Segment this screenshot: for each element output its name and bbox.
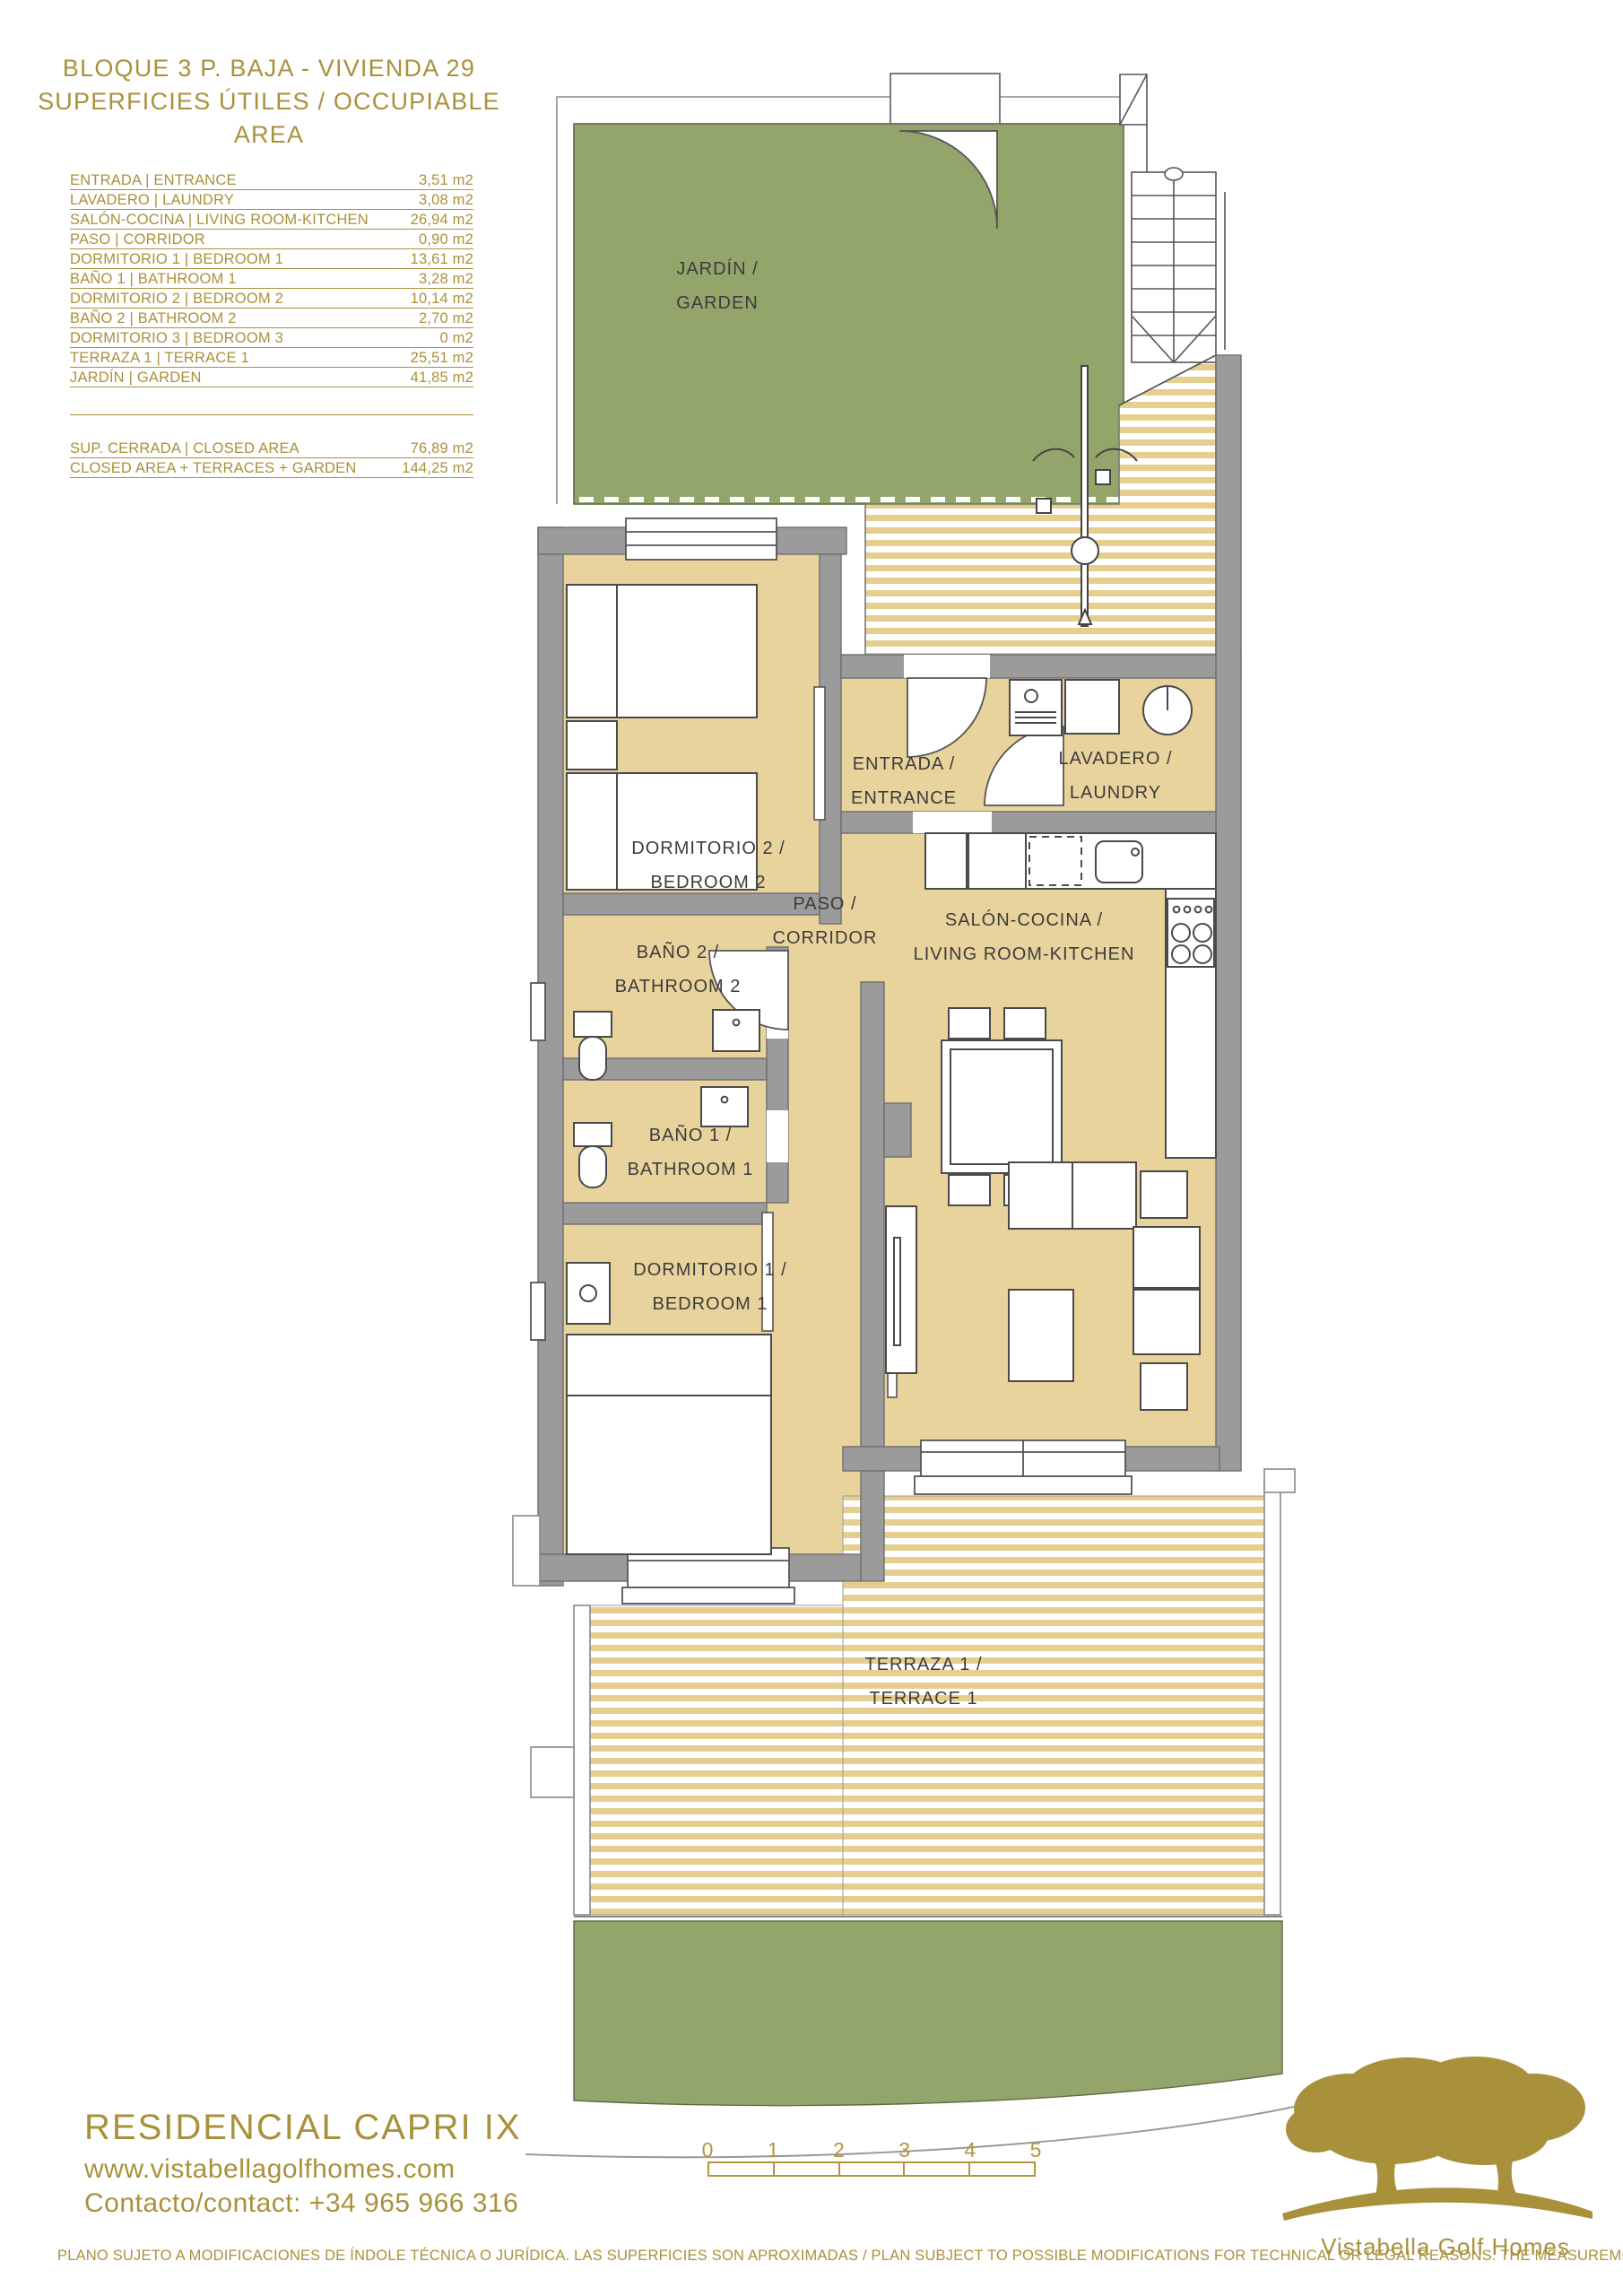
svg-text:CORRIDOR: CORRIDOR xyxy=(773,928,878,948)
logo-text: Vistabella Golf Homes xyxy=(1321,2233,1570,2260)
bathroom2-label: BAÑO 2 / xyxy=(637,941,719,962)
project-title: RESIDENCIAL CAPRI IX xyxy=(84,2108,522,2148)
garden-area xyxy=(574,124,1124,504)
bedroom2-label: DORMITORIO 2 / xyxy=(631,839,785,858)
entrance-label: ENTRADA / xyxy=(853,754,956,774)
svg-text:BATHROOM 1: BATHROOM 1 xyxy=(628,1160,754,1179)
scale-tick: 4 xyxy=(964,2138,976,2162)
terrace-label: TERRAZA 1 / xyxy=(864,1655,982,1674)
staircase xyxy=(1119,74,1225,405)
bottom-garden-area xyxy=(574,1921,1282,2106)
scale-tick: 5 xyxy=(1030,2138,1042,2162)
svg-text:BEDROOM 2: BEDROOM 2 xyxy=(650,873,766,892)
svg-text:TERRACE 1: TERRACE 1 xyxy=(869,1689,977,1709)
floorplan-page: BLOQUE 3 P. BAJA - VIVIENDA 29 SUPERFICI… xyxy=(0,0,1623,2296)
scale-bar: 0 1 2 3 4 5 xyxy=(707,2138,1036,2179)
scale-tick: 1 xyxy=(768,2138,779,2162)
svg-text:LIVING ROOM-KITCHEN: LIVING ROOM-KITCHEN xyxy=(914,944,1135,964)
svg-text:BEDROOM 1: BEDROOM 1 xyxy=(652,1294,768,1314)
scale-tick: 0 xyxy=(702,2138,714,2162)
scale-bar-segments xyxy=(707,2161,1036,2177)
svg-text:GARDEN: GARDEN xyxy=(676,293,759,313)
floor-plan: JARDÍN / GARDEN DORMITORIO 2 / BEDROOM 2… xyxy=(0,0,1623,2296)
living-kitchen-label: SALÓN-COCINA / xyxy=(945,909,1103,930)
tv-icon xyxy=(894,1238,900,1345)
scale-tick: 3 xyxy=(898,2138,910,2162)
corridor-label: PASO / xyxy=(793,894,856,914)
stove-icon xyxy=(1167,899,1214,967)
bathroom1-label: BAÑO 1 / xyxy=(649,1124,732,1145)
company-logo: Vistabella Golf Homes xyxy=(1273,2047,1614,2271)
laundry-label: LAVADERO / xyxy=(1058,749,1172,769)
tree-icon xyxy=(1282,2057,1593,2221)
bedroom1-label: DORMITORIO 1 / xyxy=(633,1260,786,1280)
garden-label: JARDÍN / xyxy=(676,258,758,279)
svg-text:ENTRANCE: ENTRANCE xyxy=(851,788,957,808)
scale-tick: 2 xyxy=(833,2138,845,2162)
terrace-striped-area-left xyxy=(590,1605,843,1915)
svg-text:LAUNDRY: LAUNDRY xyxy=(1070,783,1161,803)
website-link: www.vistabellagolfhomes.com xyxy=(84,2154,456,2185)
scale-numbers: 0 1 2 3 4 5 xyxy=(707,2138,1036,2161)
svg-text:BATHROOM 2: BATHROOM 2 xyxy=(615,977,742,996)
lamp-icon xyxy=(580,1285,596,1301)
contact-phone: Contacto/contact: +34 965 966 316 xyxy=(84,2188,518,2219)
